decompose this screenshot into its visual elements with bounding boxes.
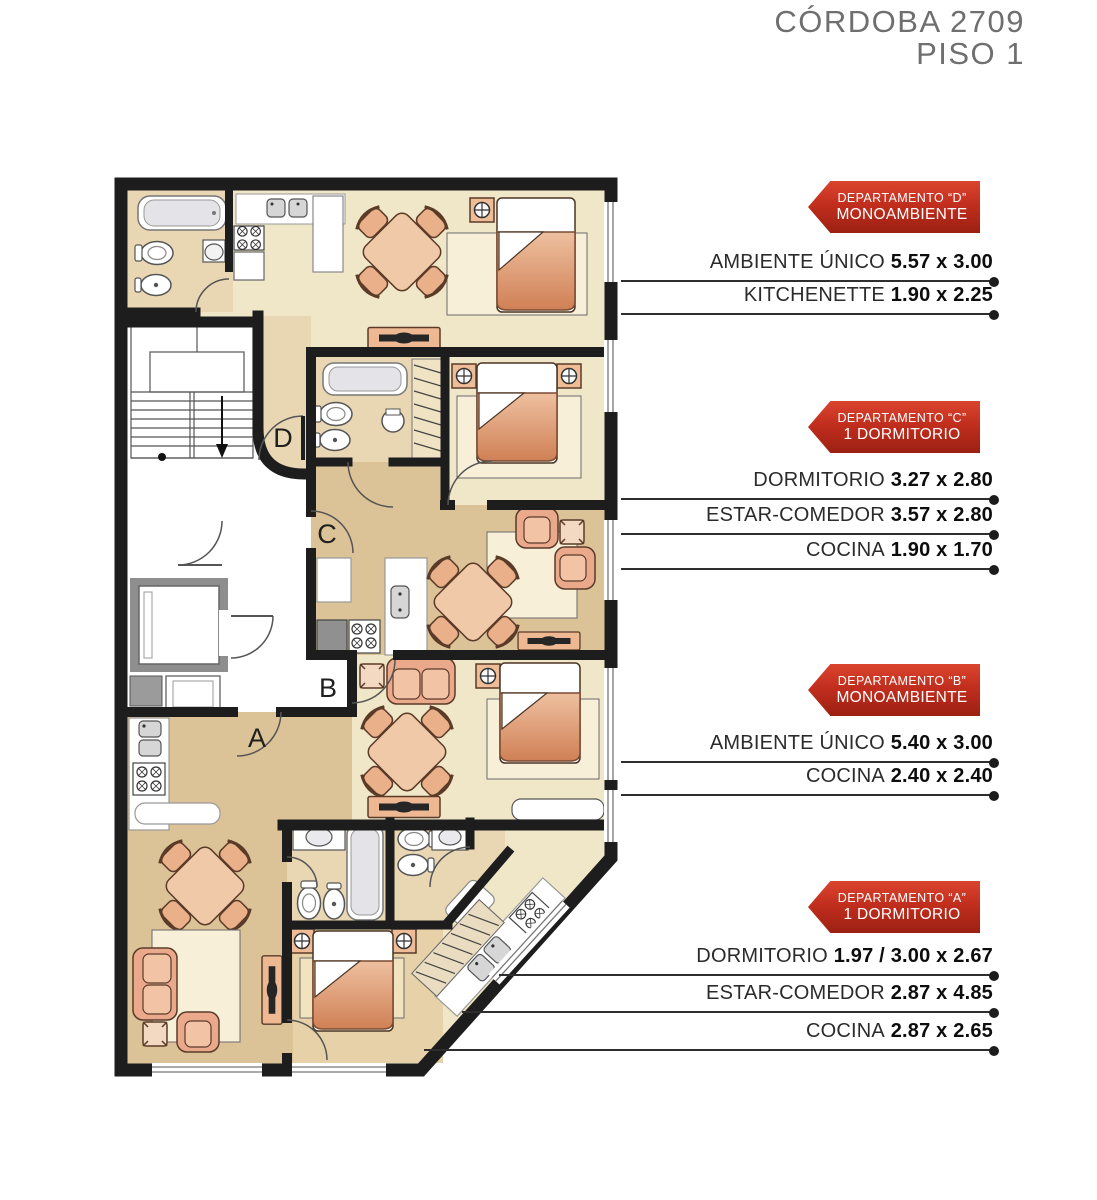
sofa: [133, 948, 177, 1020]
badge-b-line2: MONOAMBIENTE: [824, 689, 980, 707]
dim-row-b-cocina: COCINA 2.40 x 2.40: [621, 764, 996, 796]
dim-row-d-ambiente-unico: AMBIENTE ÚNICO 5.57 x 3.00: [621, 250, 996, 282]
dim-row-a-cocina: COCINA 2.87 x 2.65: [424, 1019, 996, 1051]
dim-row-c-estar-comedor: ESTAR-COMEDOR 3.57 x 2.80: [621, 503, 996, 535]
badge-apartment-b: DEPARTAMENTO “B” MONOAMBIENTE: [808, 664, 980, 716]
badge-c-line1: DEPARTAMENTO “C”: [824, 411, 980, 425]
dim-row-c-cocina: COCINA 1.90 x 1.70: [621, 538, 996, 570]
dim-row-a-estar-comedor: ESTAR-COMEDOR 2.87 x 4.85: [462, 981, 996, 1013]
badge-d-line1: DEPARTAMENTO “D”: [824, 191, 980, 205]
badge-a-line2: 1 DORMITORIO: [824, 906, 980, 924]
sofa: [387, 658, 455, 704]
bed: [313, 931, 393, 1031]
unit-label-d: D: [273, 423, 293, 453]
badge-b-line1: DEPARTAMENTO “B”: [824, 674, 980, 688]
unit-label-b: B: [319, 673, 337, 703]
elevator: [130, 578, 231, 712]
dim-row-b-ambiente-unico: AMBIENTE ÚNICO 5.40 x 3.00: [621, 731, 996, 763]
bed: [477, 363, 557, 463]
badge-a-line1: DEPARTAMENTO “A”: [824, 891, 980, 905]
unit-label-c: C: [317, 519, 337, 549]
badge-apartment-c: DEPARTAMENTO “C” 1 DORMITORIO: [808, 401, 980, 453]
dim-row-a-dormitorio: DORMITORIO 1.97 / 3.00 x 2.67: [499, 944, 996, 976]
badge-apartment-a: DEPARTAMENTO “A” 1 DORMITORIO: [808, 881, 980, 933]
badge-c-line2: 1 DORMITORIO: [824, 426, 980, 444]
unit-label-a: A: [248, 723, 266, 753]
bed: [500, 663, 580, 763]
badge-d-line2: MONOAMBIENTE: [824, 206, 980, 224]
floor-plan-page: CÓRDOBA 2709 PISO 1: [0, 0, 1097, 1200]
dim-row-d-kitchenette: KITCHENETTE 1.90 x 2.25: [621, 283, 996, 315]
badge-apartment-d: DEPARTAMENTO “D” MONOAMBIENTE: [808, 181, 980, 233]
bed: [497, 198, 575, 312]
dim-row-c-dormitorio: DORMITORIO 3.27 x 2.80: [621, 468, 996, 500]
